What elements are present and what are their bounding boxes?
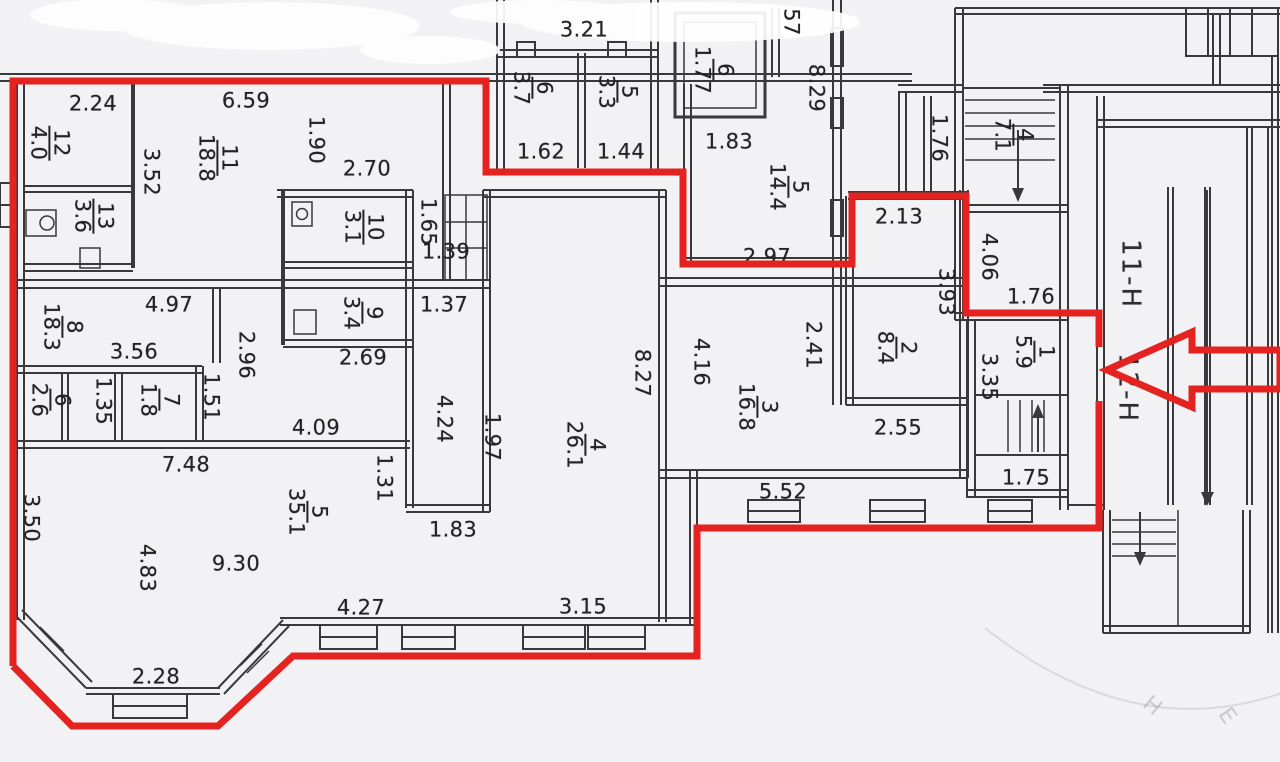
unit-outline-annotation bbox=[13, 401, 1099, 726]
red-arrow-annotation bbox=[1107, 332, 1280, 407]
unit-outline-annotation bbox=[13, 81, 1099, 666]
floorplan-scan: 124.01118.8133.6103.193.4818.362.671.853… bbox=[0, 0, 1280, 762]
annotation-overlay bbox=[0, 0, 1280, 762]
